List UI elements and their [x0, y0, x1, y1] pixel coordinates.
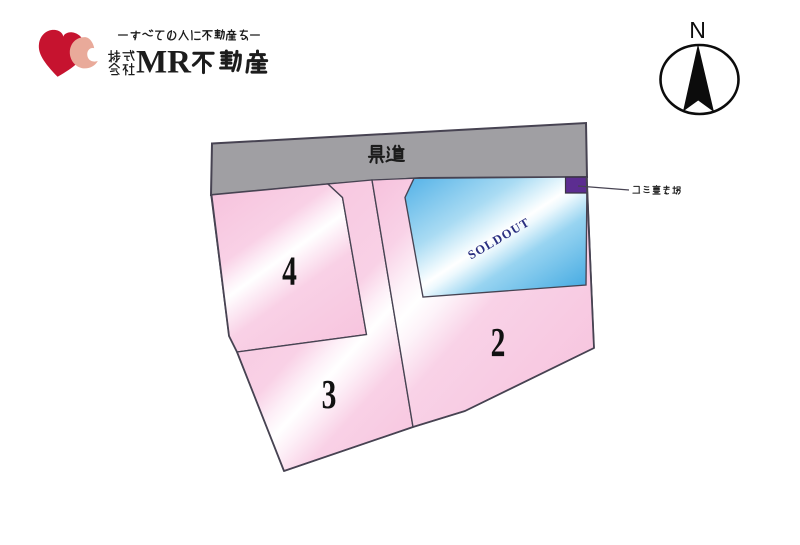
- svg-text:4: 4: [282, 248, 297, 294]
- svg-text:N: N: [689, 17, 706, 43]
- svg-text:2: 2: [491, 319, 506, 365]
- svg-text:3: 3: [322, 371, 337, 417]
- svg-text:MR: MR: [136, 45, 192, 81]
